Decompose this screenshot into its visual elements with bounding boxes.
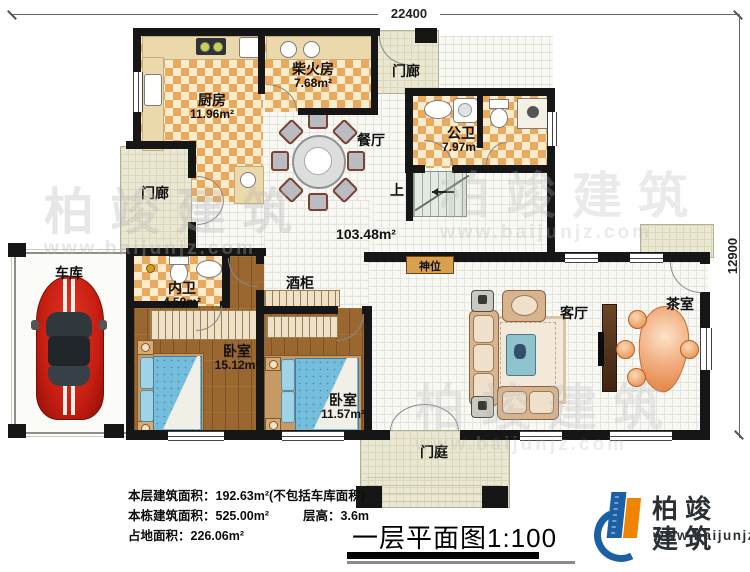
armchair [502, 290, 546, 322]
wall [256, 248, 264, 264]
blanket [153, 356, 200, 429]
wine-cabinet-label: 酒柜 [278, 276, 322, 291]
wall [298, 108, 378, 115]
car-roof [48, 336, 90, 366]
window [547, 112, 557, 146]
stove-burner-icon [213, 42, 223, 52]
wall [405, 88, 413, 173]
porch-left-label: 门廊 [122, 186, 188, 201]
dim-tick [7, 10, 17, 20]
wall [405, 88, 555, 96]
plan-title: 一层平面图1:100 [352, 518, 557, 555]
bath-sink-icon [196, 260, 222, 278]
wall [188, 141, 196, 178]
column [8, 424, 26, 438]
washer-drum-icon [458, 103, 472, 117]
window [565, 253, 598, 263]
nightstand [137, 340, 154, 355]
lamp-icon [146, 264, 155, 273]
tea-stool [627, 368, 646, 387]
porch-left-floor [120, 146, 192, 258]
garage-label: 车库 [36, 266, 102, 281]
window [133, 72, 143, 112]
top-dimension-label: 22400 [378, 5, 440, 22]
wall [126, 248, 134, 440]
floor-plan-canvas: 22400 12900 [0, 0, 750, 572]
window [610, 431, 672, 441]
public-bath-label: 公卫7.97m² [428, 126, 494, 154]
brand-logo: 柏竣建筑 www.baijunjz.com [594, 488, 744, 560]
kitchen-label: 厨房11.96m² [162, 93, 262, 121]
firewood-label: 柴火房7.68m² [272, 62, 354, 90]
car-mirror [99, 320, 107, 330]
wall [133, 28, 380, 36]
car [36, 276, 102, 418]
title-underline-thin [347, 561, 575, 564]
shrine-box: 神位 [406, 256, 454, 274]
dining-chair [271, 151, 289, 171]
wall [452, 165, 555, 173]
brand-name: 柏竣建筑 [652, 494, 744, 554]
toilet-tank-icon [169, 256, 189, 265]
shower-drain-icon [527, 106, 539, 118]
wall [126, 248, 266, 256]
car-rear-window [48, 366, 90, 386]
dining-chair [308, 193, 328, 211]
dining-table-top [304, 147, 332, 175]
living-label: 客厅 [546, 306, 602, 321]
column [104, 424, 124, 438]
pillow [281, 359, 295, 391]
stairs-arrowhead [428, 188, 438, 196]
tv-icon [598, 332, 604, 366]
info-line-1: 本层建筑面积：192.63m²(不包括车库面积) [128, 486, 408, 506]
basin-icon [280, 41, 297, 58]
stairs-up-label: 上 [388, 183, 406, 198]
wall [256, 306, 338, 314]
tea-stool [680, 340, 699, 359]
column [482, 486, 508, 508]
coffee-table-decor [514, 344, 526, 359]
hall-area-label: 103.48m² [330, 227, 402, 242]
wall [126, 141, 196, 149]
window [282, 431, 344, 441]
brand-logo-icon [594, 490, 648, 552]
dim-tick [733, 10, 743, 20]
wall [460, 430, 710, 440]
brand-website: www.baijunjz.com [653, 528, 750, 543]
tv-cabinet [602, 304, 617, 392]
shrine-label: 神位 [419, 261, 441, 273]
window [700, 328, 712, 370]
pillow [281, 391, 295, 423]
tea-label: 茶室 [652, 297, 708, 312]
sofa [469, 310, 499, 406]
wall [258, 36, 265, 94]
column [8, 243, 26, 257]
wall [222, 248, 230, 308]
kitchen-sink-icon [144, 74, 162, 106]
top-dimension-line [12, 14, 738, 15]
car-windshield [46, 312, 92, 338]
window [520, 431, 562, 441]
loveseat [497, 386, 559, 420]
right-dimension-line [739, 14, 740, 438]
basin-icon [303, 41, 320, 58]
column [415, 28, 437, 43]
bedroom1-label: 卧室15.12m² [204, 344, 270, 372]
window [168, 431, 224, 441]
dining-chair [347, 151, 365, 171]
right-dimension-label: 12900 [725, 227, 741, 285]
title-underline [347, 552, 539, 559]
car-mirror [31, 320, 39, 330]
inner-bath-label: 内卫4.59m² [147, 281, 217, 309]
tea-stool [628, 310, 647, 329]
wall [700, 252, 710, 264]
wardrobe [266, 316, 338, 338]
wine-cabinet [264, 290, 340, 307]
toilet-bowl-icon [490, 108, 508, 128]
bath-sink-icon [424, 100, 452, 119]
stove-burner-icon [200, 42, 210, 52]
window [630, 253, 663, 263]
side-stool [471, 290, 494, 312]
pillow [140, 390, 154, 422]
wall [406, 171, 413, 221]
bedroom2-label: 卧室11.57m² [312, 393, 374, 421]
side-stool [471, 396, 494, 418]
pillow [140, 357, 154, 389]
dining-label: 餐厅 [345, 133, 397, 148]
tea-stool [616, 340, 635, 359]
entry-court-label: 门庭 [404, 445, 464, 460]
porch-top-label: 门廊 [375, 64, 437, 79]
kettle-icon [240, 172, 256, 188]
